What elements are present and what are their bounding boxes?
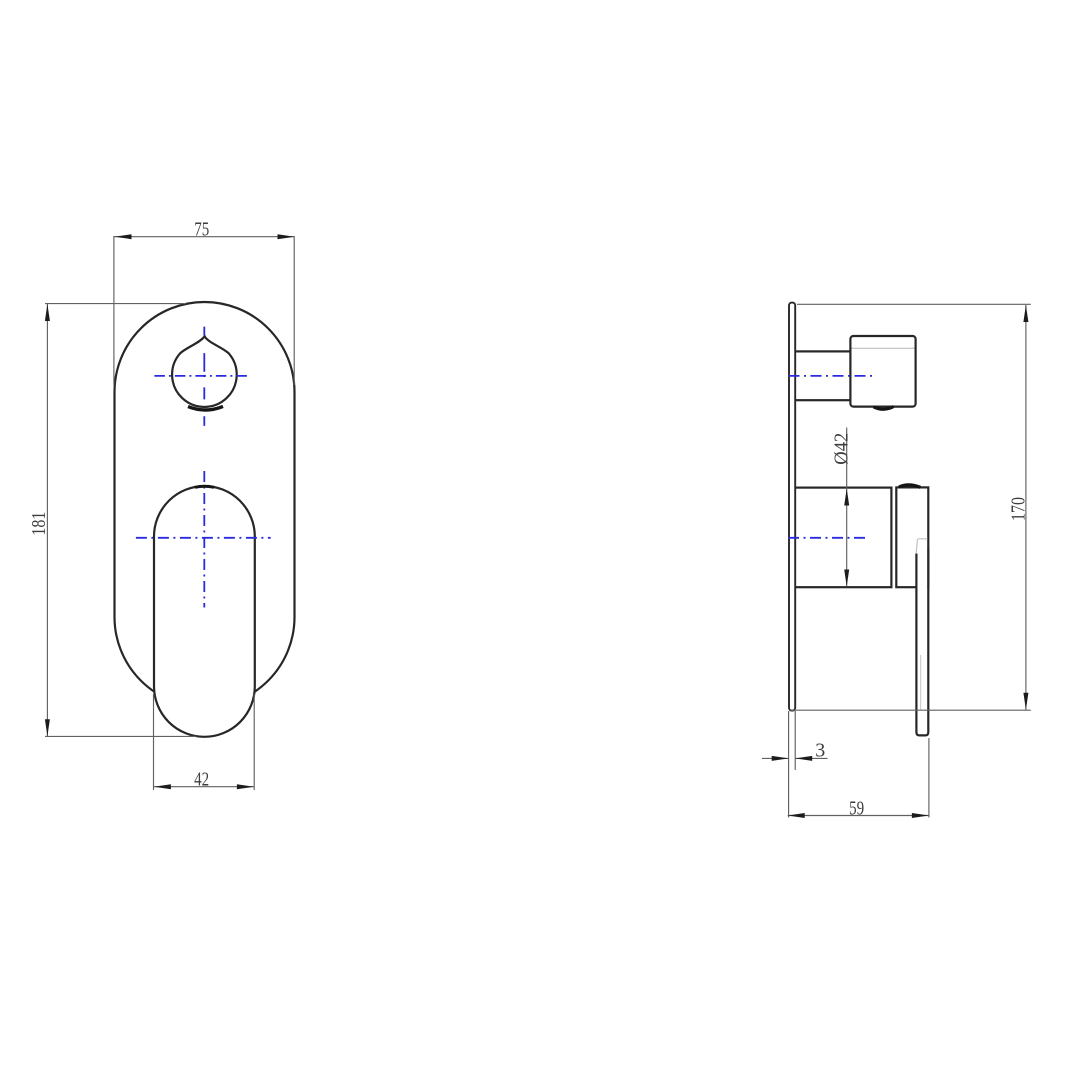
svg-text:181: 181 xyxy=(28,512,50,536)
svg-text:42: 42 xyxy=(194,768,209,790)
svg-text:170: 170 xyxy=(1007,497,1029,521)
svg-text:3: 3 xyxy=(815,740,825,762)
svg-text:Ø42: Ø42 xyxy=(831,433,853,465)
svg-text:75: 75 xyxy=(194,219,209,241)
svg-text:59: 59 xyxy=(849,798,864,820)
